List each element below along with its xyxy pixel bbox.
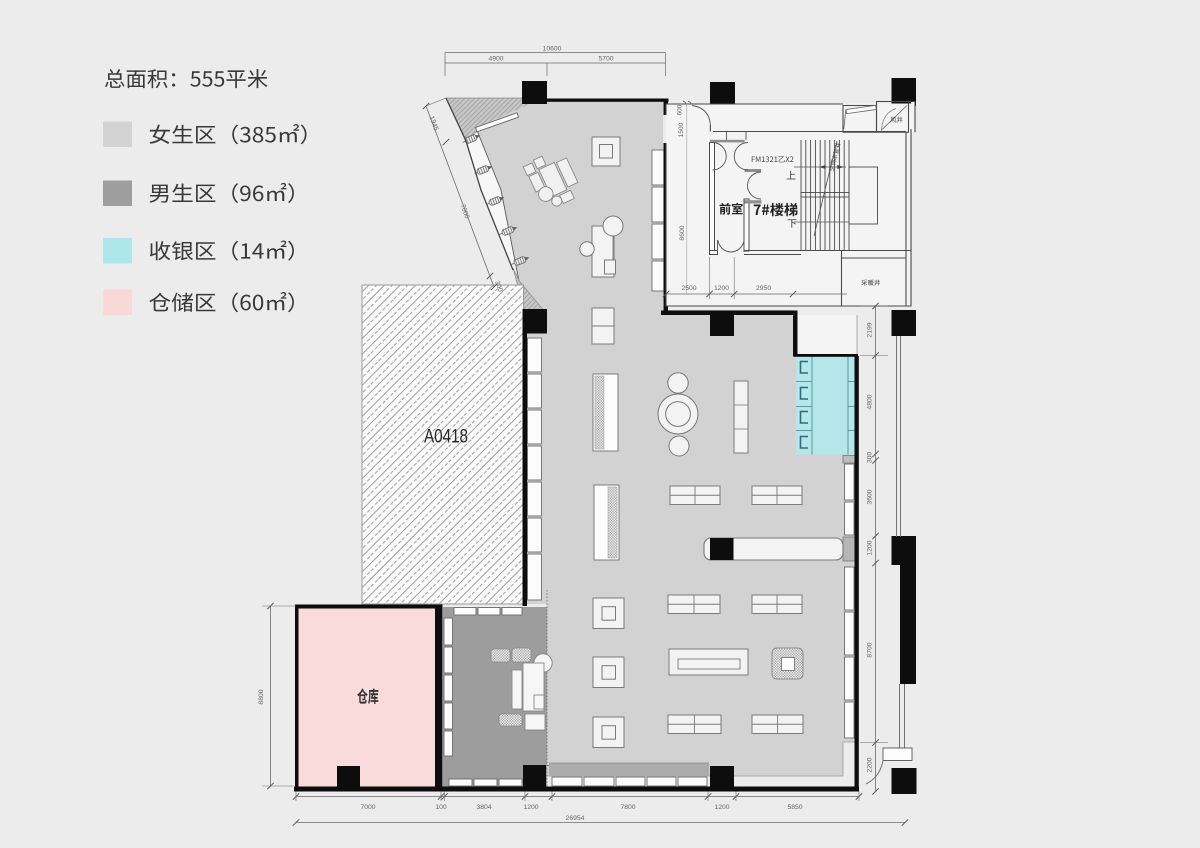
svg-text:300: 300: [867, 452, 874, 464]
svg-text:1500: 1500: [678, 122, 685, 137]
svg-text:2199: 2199: [867, 322, 874, 337]
svg-text:2500: 2500: [681, 285, 696, 292]
svg-text:100: 100: [435, 804, 447, 811]
svg-text:600: 600: [677, 104, 684, 115]
svg-text:4900: 4900: [488, 56, 503, 63]
svg-text:2200: 2200: [867, 757, 874, 772]
svg-text:8700: 8700: [867, 642, 874, 657]
svg-text:1200: 1200: [867, 540, 874, 555]
svg-text:3600: 3600: [867, 489, 874, 504]
svg-text:1200: 1200: [714, 285, 729, 292]
svg-text:1945: 1945: [428, 115, 440, 132]
svg-text:1200: 1200: [523, 804, 538, 811]
svg-text:8600: 8600: [679, 225, 686, 240]
svg-text:1200: 1200: [714, 804, 729, 811]
svg-text:7000: 7000: [459, 203, 471, 220]
svg-text:3804: 3804: [476, 804, 491, 811]
svg-text:10600: 10600: [543, 46, 562, 53]
svg-text:A0418: A0418: [424, 427, 468, 448]
svg-text:2950: 2950: [756, 285, 771, 292]
svg-text:5850: 5850: [787, 804, 802, 811]
svg-text:7800: 7800: [620, 804, 635, 811]
svg-text:8800: 8800: [258, 689, 265, 704]
svg-text:7000: 7000: [360, 804, 375, 811]
svg-text:5700: 5700: [598, 56, 613, 63]
svg-text:4800: 4800: [867, 394, 874, 409]
svg-text:26954: 26954: [566, 815, 585, 822]
